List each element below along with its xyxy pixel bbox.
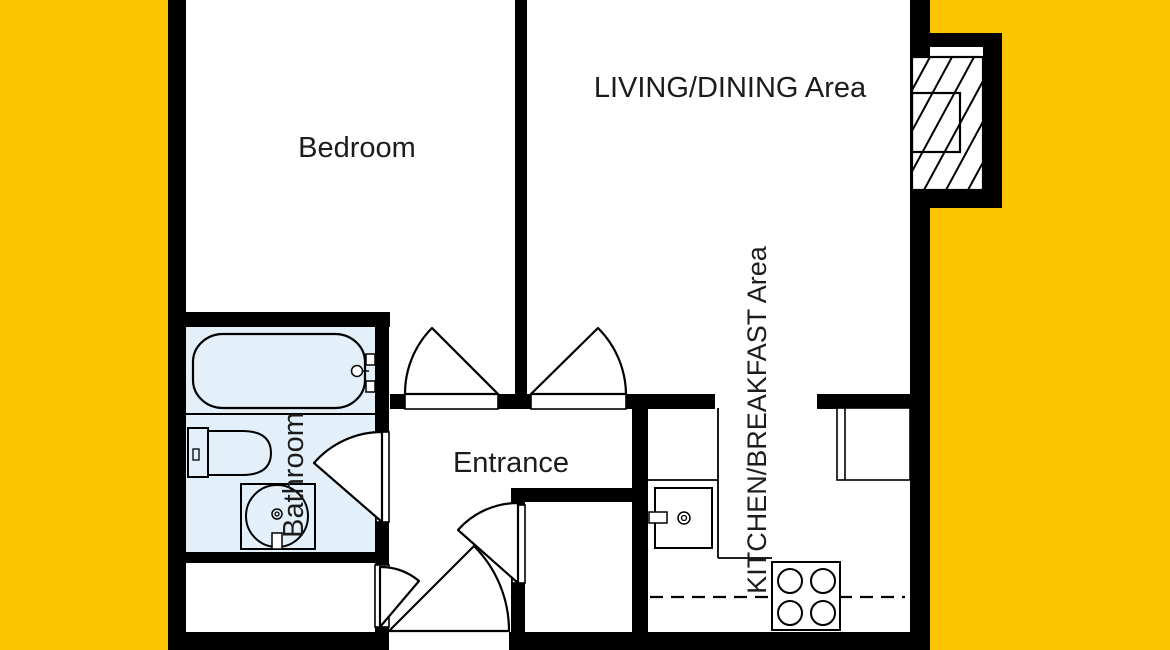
living-door-threshold bbox=[531, 394, 626, 409]
chimney-block bbox=[912, 57, 983, 190]
bedroom-door-threshold bbox=[405, 394, 498, 409]
wall-niche-bottom bbox=[910, 190, 1002, 208]
kitchen-sink-tap bbox=[649, 512, 667, 523]
floor-plan-canvas: Bedroom LIVING/DINING Area Entrance Bath… bbox=[0, 0, 1170, 650]
entrance-label: Entrance bbox=[453, 447, 569, 479]
floor-plan: Bedroom LIVING/DINING Area Entrance Bath… bbox=[0, 0, 1170, 650]
kitchen-sink bbox=[649, 488, 712, 548]
burner-3 bbox=[778, 601, 802, 625]
kitchen-sink-drain-inner bbox=[682, 516, 687, 521]
faucet-bracket-top bbox=[366, 354, 375, 365]
wall-bottom bbox=[168, 632, 930, 650]
wall-bathroom-bottom bbox=[168, 552, 389, 563]
stove bbox=[772, 562, 840, 630]
faucet-bracket-bottom bbox=[366, 381, 375, 392]
toilet-flush-button bbox=[193, 449, 199, 460]
burner-2 bbox=[811, 569, 835, 593]
burner-4 bbox=[811, 601, 835, 625]
toilet-bowl bbox=[208, 431, 271, 475]
toilet bbox=[188, 428, 271, 477]
wall-kitchen-divider bbox=[632, 394, 648, 650]
kitchen-breakfast-label: KITCHEN/BREAKFAST Area bbox=[742, 245, 772, 594]
front-door-opening bbox=[389, 632, 509, 650]
breakfast-table bbox=[837, 408, 910, 480]
living-dining-label: LIVING/DINING Area bbox=[594, 72, 867, 104]
wall-bedroom-living-divider bbox=[515, 0, 527, 409]
wall-bathroom-top bbox=[168, 312, 390, 327]
bathtub bbox=[193, 334, 365, 408]
wall-niche-right bbox=[983, 33, 1002, 208]
table-top bbox=[837, 408, 910, 480]
faucet-tap-icon bbox=[352, 366, 363, 377]
bedroom-label: Bedroom bbox=[298, 132, 416, 164]
wall-storeroom-top bbox=[511, 488, 632, 502]
bathroom-label: Bathroom bbox=[278, 412, 310, 538]
burner-1 bbox=[778, 569, 802, 593]
